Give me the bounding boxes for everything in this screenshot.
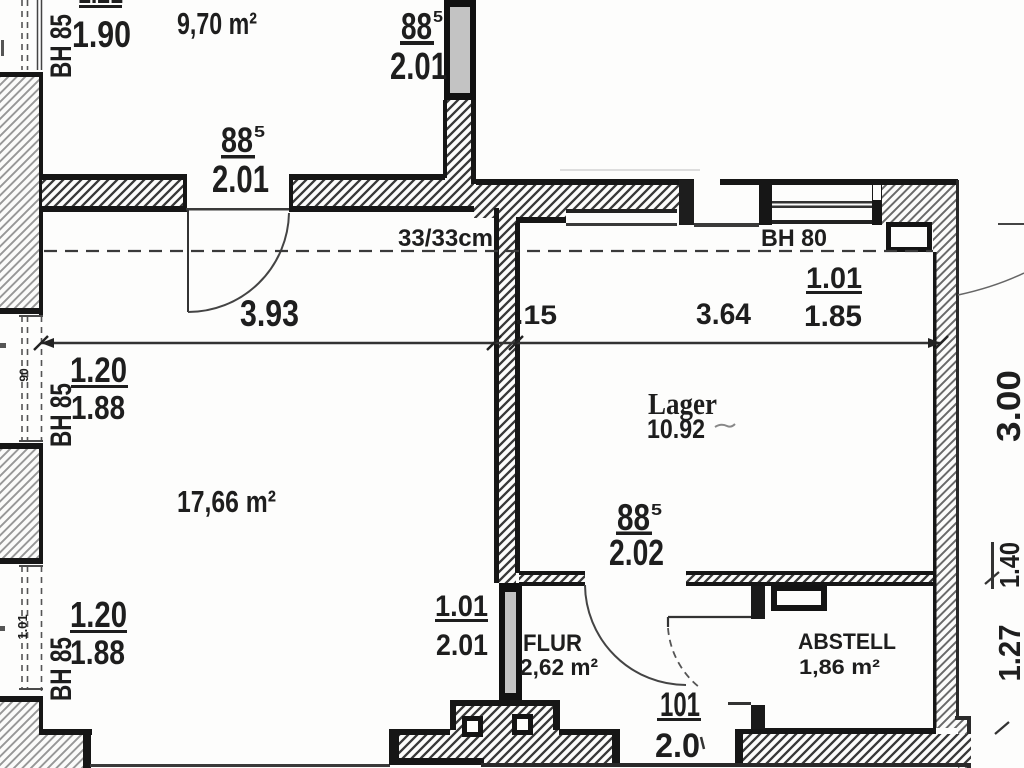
- svg-text:1.90: 1.90: [72, 14, 131, 55]
- svg-text:1.01: 1.01: [806, 262, 862, 295]
- svg-text:88: 88: [401, 6, 432, 47]
- svg-text:1.40: 1.40: [994, 542, 1024, 588]
- svg-text:1.01: 1.01: [435, 590, 488, 623]
- svg-text:5: 5: [433, 9, 443, 26]
- svg-text:.15: .15: [515, 300, 557, 330]
- svg-text:2.0: 2.0: [655, 727, 700, 765]
- svg-text:BH 80: BH 80: [761, 225, 827, 252]
- svg-text:5: 5: [254, 124, 265, 141]
- svg-text:1,86 m²: 1,86 m²: [799, 656, 880, 679]
- svg-text:ABSTELL: ABSTELL: [798, 629, 896, 654]
- svg-text:3.93: 3.93: [240, 293, 299, 334]
- svg-text:1.85: 1.85: [804, 300, 862, 333]
- svg-text:3.64: 3.64: [696, 298, 751, 331]
- svg-text:2.01: 2.01: [212, 159, 269, 201]
- svg-text:10.92: 10.92: [647, 414, 705, 444]
- svg-text:5: 5: [651, 502, 662, 519]
- svg-text:2.01: 2.01: [436, 629, 488, 662]
- svg-text:1.21: 1.21: [78, 0, 123, 11]
- svg-text:2.01: 2.01: [390, 46, 447, 88]
- svg-text:1.20: 1.20: [70, 594, 127, 635]
- svg-text:3.00: 3.00: [990, 370, 1024, 442]
- svg-text:2,62 m²: 2,62 m²: [520, 654, 598, 680]
- svg-text:9,70 m²: 9,70 m²: [177, 6, 257, 41]
- svg-text:17,66 m²: 17,66 m²: [177, 484, 276, 519]
- svg-text:1.88: 1.88: [71, 389, 125, 426]
- svg-text:2.02: 2.02: [609, 532, 664, 573]
- svg-text:FLUR: FLUR: [523, 630, 582, 657]
- svg-text:90: 90: [17, 368, 31, 382]
- svg-text:BH 85: BH 85: [45, 383, 78, 447]
- svg-text:88: 88: [221, 121, 253, 160]
- svg-text:1.20: 1.20: [70, 351, 127, 390]
- svg-text:BH 85: BH 85: [45, 14, 78, 78]
- svg-text:1.01: 1.01: [15, 614, 30, 639]
- svg-text:BH 85: BH 85: [45, 637, 78, 701]
- svg-text:1.88: 1.88: [70, 634, 125, 672]
- svg-text:33/33cm: 33/33cm: [398, 225, 493, 252]
- svg-text:1.27: 1.27: [992, 625, 1024, 682]
